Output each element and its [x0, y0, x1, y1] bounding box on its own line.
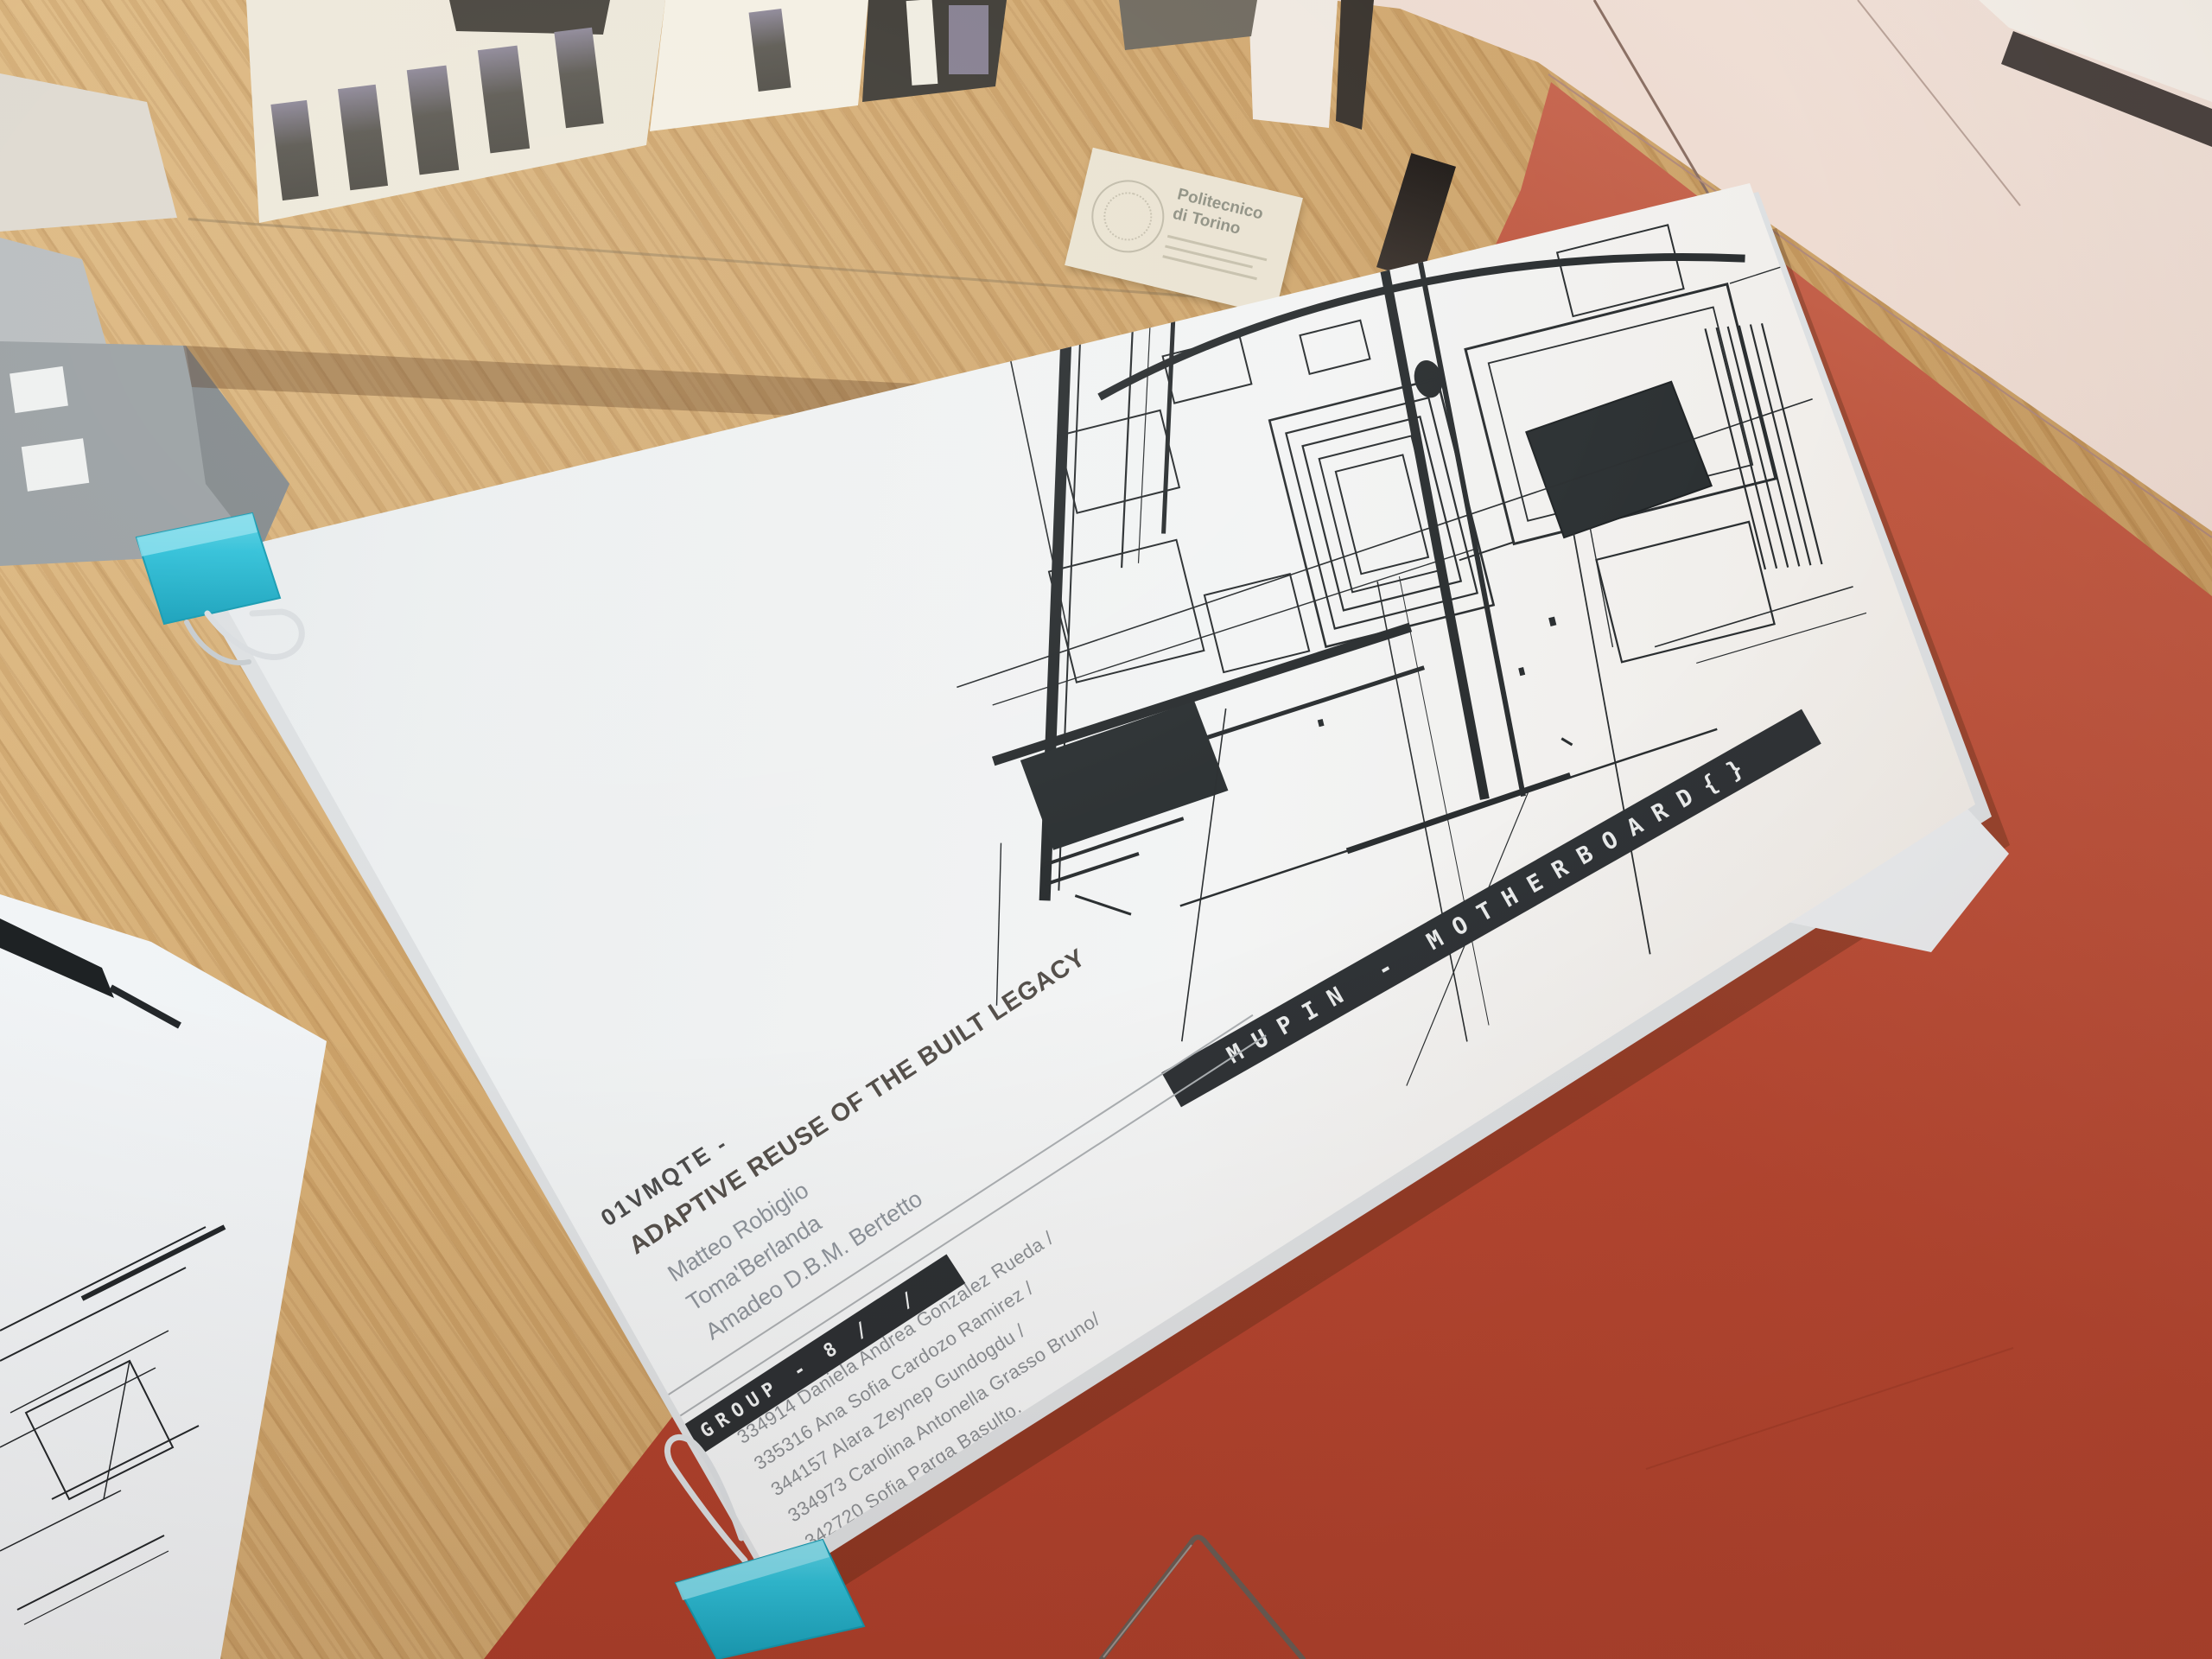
secondary-sheet-drawing — [0, 894, 328, 1659]
photo-scene: Politecnico di Torino — [0, 0, 2212, 1659]
binder-clip-left — [104, 484, 328, 709]
tape-patch — [22, 438, 90, 492]
binder-clip-bottom — [596, 1400, 890, 1659]
label-fineprint-bar — [1162, 255, 1257, 280]
model-interior-wall — [949, 5, 988, 74]
metal-wire — [1071, 1503, 1348, 1659]
tape-patch — [10, 366, 68, 413]
label-fineprint-bar — [1165, 245, 1253, 268]
politecnico-label-text: Politecnico di Torino — [1171, 184, 1265, 243]
